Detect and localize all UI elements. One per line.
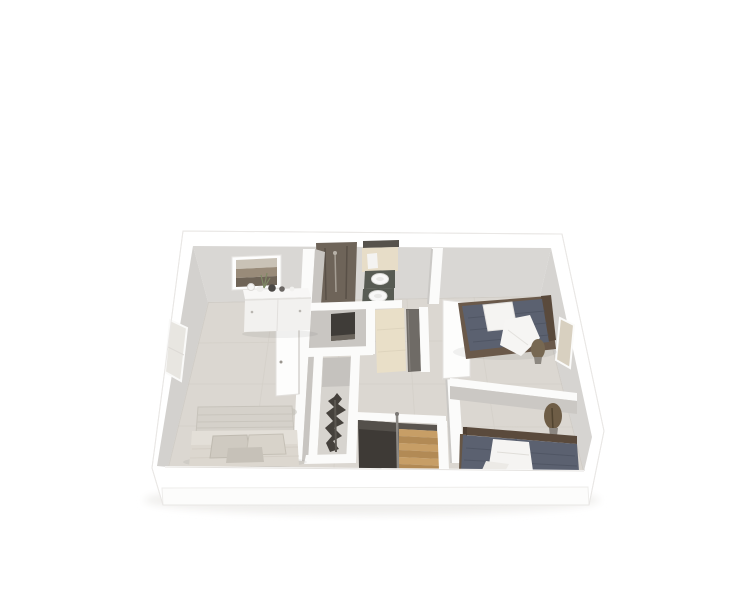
shower-head-icon	[333, 251, 337, 255]
plant-stem	[552, 408, 553, 430]
wc-east-cap	[366, 308, 375, 355]
sink-drain-2	[374, 294, 382, 298]
floor-plan-render	[0, 0, 750, 600]
master-bed	[183, 406, 307, 468]
bed2-dry-plant	[531, 339, 545, 359]
closet-inner-wall	[322, 357, 351, 387]
shower-tile-streak	[346, 246, 347, 299]
vanity-double-sink	[362, 240, 399, 306]
handrail-post-icon	[395, 412, 399, 416]
stair-east-cap	[437, 420, 449, 470]
shower-tile-streak	[325, 248, 326, 300]
master-throw-pillow	[226, 447, 264, 463]
front-fascia-face	[162, 487, 589, 505]
white-vase	[248, 284, 255, 291]
right-wall-window	[556, 318, 574, 368]
bedroom2-bed	[453, 295, 557, 364]
white-pot	[257, 286, 264, 292]
candle	[290, 287, 295, 292]
sideboard-leg	[251, 311, 254, 314]
dark-jar	[268, 284, 276, 292]
shower-bar	[335, 252, 336, 292]
sink-drain-1	[376, 277, 384, 281]
sideboard-leg	[299, 310, 302, 313]
small-dark-jar	[279, 286, 285, 292]
closet-south-cap	[304, 454, 352, 464]
master-headboard	[196, 406, 294, 434]
corridor-floor	[375, 308, 406, 373]
stair-handrail	[397, 414, 398, 469]
bed2-plant-pot	[534, 357, 542, 364]
door-handle-icon	[280, 361, 283, 364]
vanity-back-shelf	[363, 240, 399, 248]
bathroom-corridor	[375, 307, 430, 373]
plant-stem	[335, 400, 336, 452]
towel	[367, 253, 378, 269]
floor-plan-canvas	[0, 0, 750, 600]
